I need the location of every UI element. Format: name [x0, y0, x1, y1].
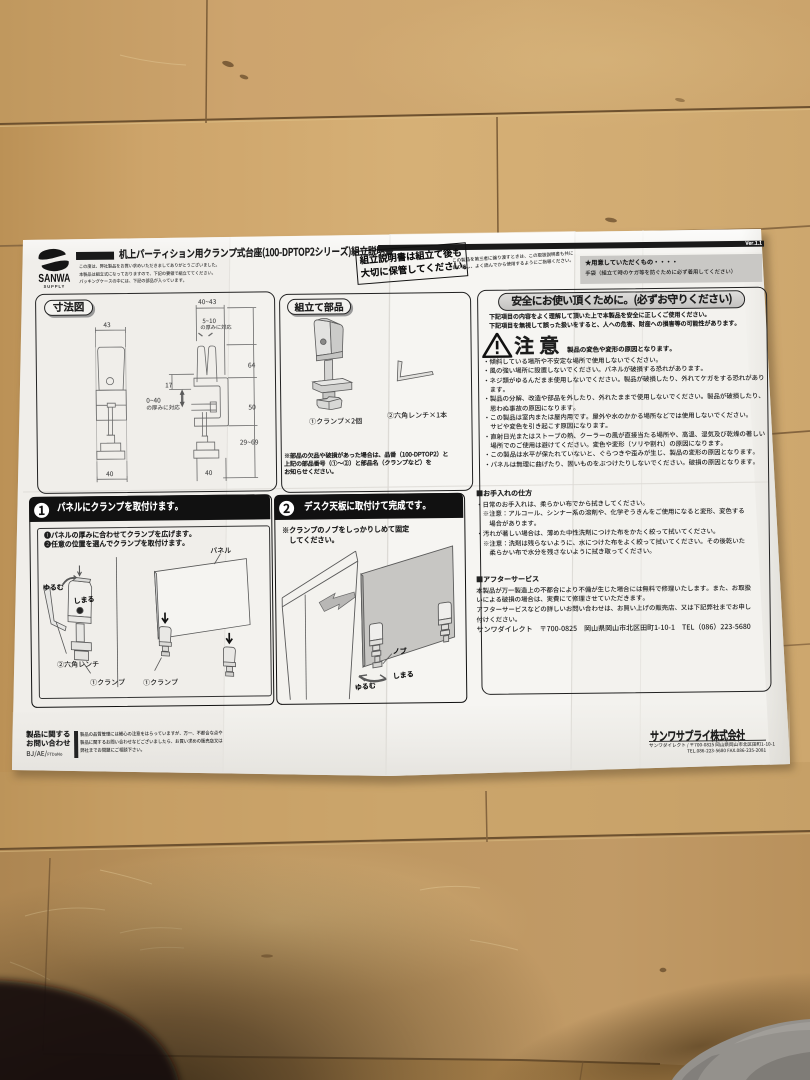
svg-text:50: 50: [248, 402, 256, 412]
svg-text:29~69: 29~69: [239, 436, 259, 446]
svg-text:の厚みに対応: の厚みに対応: [146, 403, 180, 411]
svg-text:64: 64: [248, 360, 256, 370]
svg-text:ノブ: ノブ: [393, 647, 407, 657]
svg-text:40: 40: [205, 468, 212, 477]
svg-text:しまる: しまる: [73, 594, 95, 606]
svg-text:しまる: しまる: [392, 669, 414, 681]
svg-text:40: 40: [106, 469, 113, 478]
svg-text:パネル: パネル: [210, 546, 232, 556]
svg-text:ゆるむ: ゆるむ: [43, 583, 64, 593]
svg-text:17: 17: [165, 380, 173, 389]
svg-text:SUPPLY: SUPPLY: [44, 284, 66, 289]
svg-text:の厚みに対応: の厚みに対応: [200, 324, 232, 331]
svg-text:ゆるむ: ゆるむ: [354, 681, 376, 693]
svg-text:40~43: 40~43: [198, 297, 217, 306]
svg-text:43: 43: [103, 320, 111, 329]
